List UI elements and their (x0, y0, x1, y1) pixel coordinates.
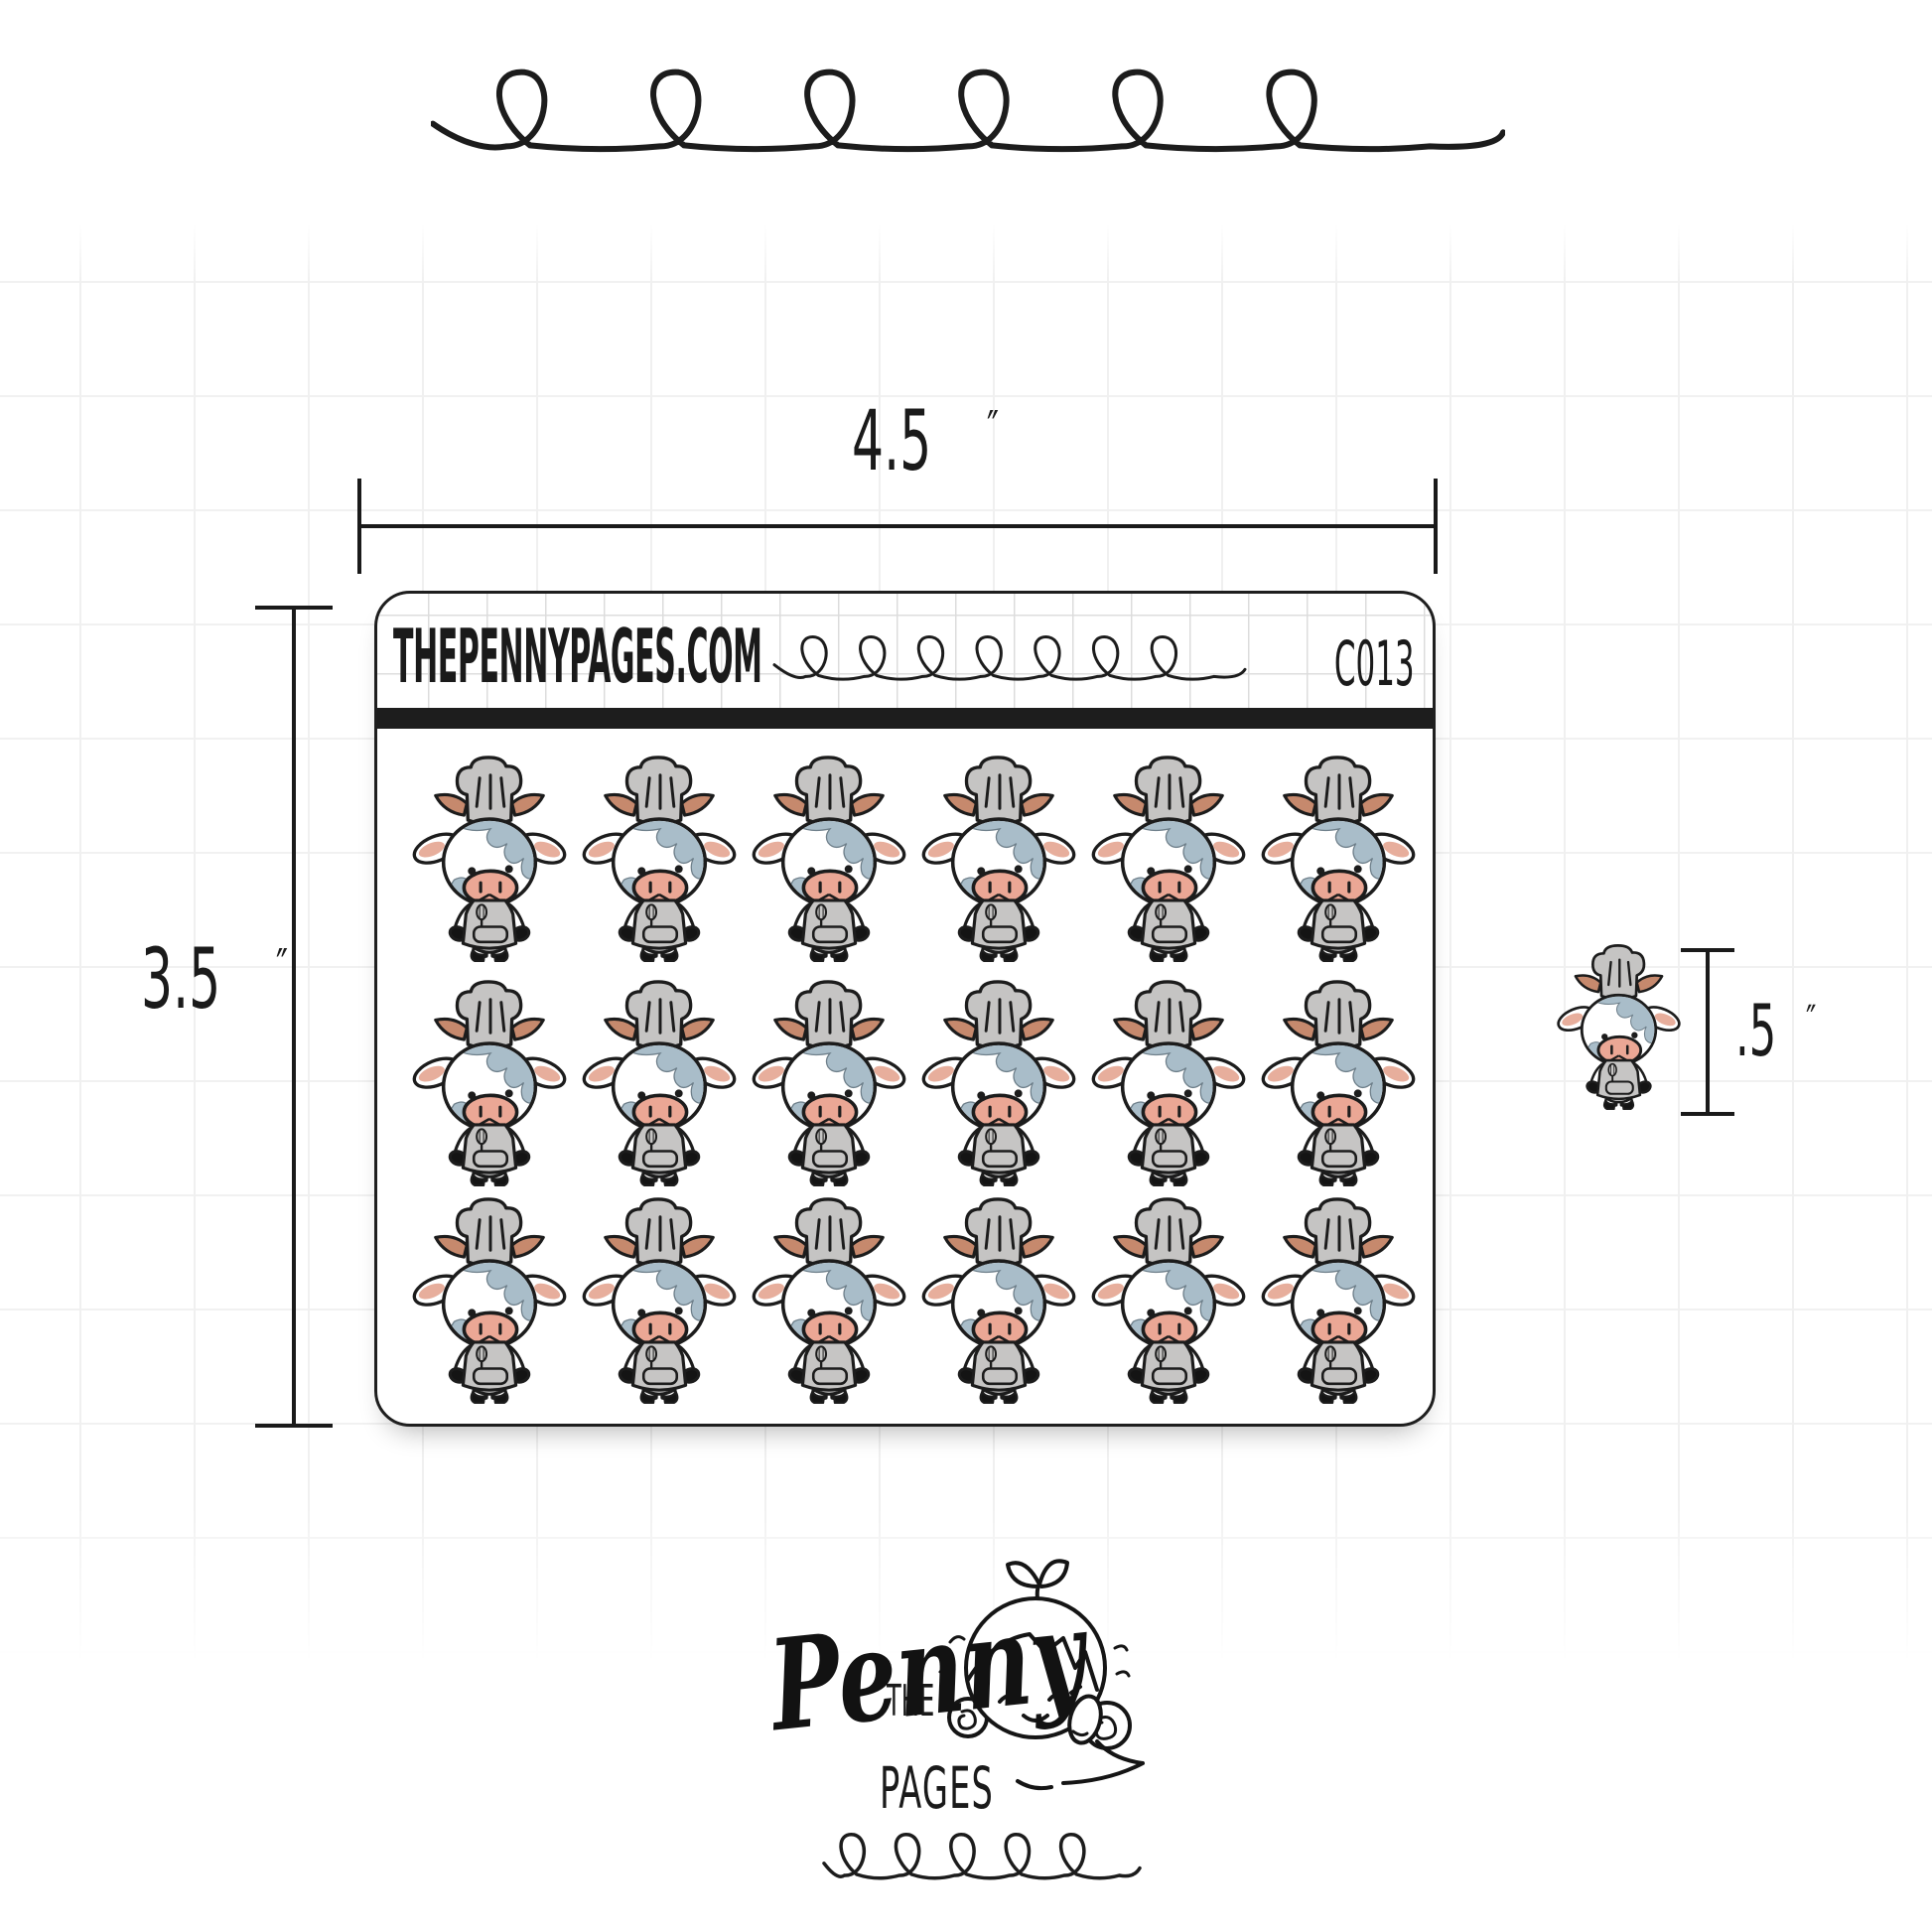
sheet-width-value: 4.5 (852, 399, 931, 483)
chef-cow-sticker (411, 1196, 568, 1404)
width-dim-tick-right (1434, 479, 1438, 574)
chef-cow-sticker (920, 1196, 1077, 1404)
sheet-width-label: 4.5 ″ (852, 399, 1004, 483)
sticker-height-unit: ″ (1806, 1001, 1816, 1040)
sticker-sheet: THEPENNYPAGES.COM C013 (374, 591, 1436, 1427)
logo-penny: Penny (764, 1591, 1090, 1748)
sheet-height-unit: ″ (276, 943, 288, 989)
sheet-height-value: 3.5 (141, 937, 220, 1021)
chef-cow-sticker (920, 979, 1077, 1186)
chef-cow-sticker (581, 979, 738, 1186)
chef-cow-sticker (751, 1196, 907, 1404)
chef-cow-sticker (1090, 1196, 1247, 1404)
chef-cow-sticker (581, 1196, 738, 1404)
chef-cow-sticker (1260, 1196, 1417, 1404)
loop-doodle-top (431, 62, 1505, 169)
height-dim-tick-bottom (255, 1424, 333, 1428)
sticker-dim-tick-bottom (1681, 1112, 1734, 1116)
chef-cow-sticker (920, 755, 1077, 962)
sticker-height-label: .5 ″ (1735, 995, 1821, 1066)
chef-cow-sticker (1090, 755, 1247, 962)
sticker-dim-line (1706, 950, 1710, 1116)
chef-cow-sticker-single (1556, 943, 1682, 1110)
sheet-height-label: 3.5 ″ (141, 937, 293, 1021)
chef-cow-sticker (411, 979, 568, 1186)
width-dim-line (359, 524, 1438, 528)
chef-cow-sticker (581, 755, 738, 962)
loop-doodle-bottom (822, 1829, 1142, 1888)
height-dim-line (292, 608, 296, 1428)
page-background: { "sheet": { "site": "THEPENNYPAGES.COM"… (0, 0, 1932, 1932)
sheet-width-unit: ″ (987, 405, 999, 451)
chef-cow-sticker (751, 755, 907, 962)
chef-cow-sticker (1090, 979, 1247, 1186)
logo-pages: PAGES (880, 1759, 994, 1817)
sticker-sheet-body (377, 594, 1433, 1424)
chef-cow-sticker (1260, 979, 1417, 1186)
chef-cow-sticker (411, 755, 568, 962)
chef-cow-sticker (1260, 755, 1417, 962)
girl-arm (1018, 1741, 1143, 1788)
chef-cow-sticker (751, 979, 907, 1186)
sticker-height-value: .5 (1735, 995, 1776, 1066)
